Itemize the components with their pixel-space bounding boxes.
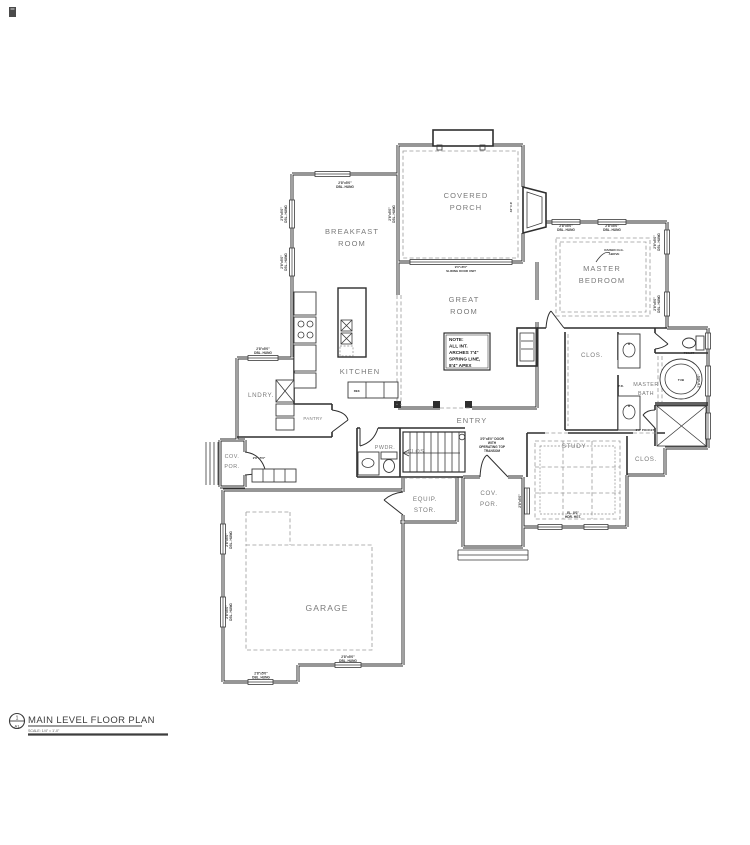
label-cov-por-front-1: COV.	[480, 490, 497, 497]
win-label: DBL. HUNG	[284, 205, 288, 223]
win-label: DBL. HUNG	[557, 228, 575, 232]
label-master-bed-2: BEDROOM	[579, 276, 625, 285]
win-label: DBL. HUNG	[392, 205, 396, 223]
pd-label: P.D.	[618, 384, 624, 388]
note-line-1: NOTE:	[449, 337, 464, 342]
pocket-door-label: 3'0" POCKET	[636, 428, 655, 432]
label-cov-por-left-2: POR.	[224, 464, 239, 470]
label-pantry: PANTRY	[303, 416, 322, 421]
corner-mark	[9, 7, 16, 17]
win-label: DBL. HUNG	[603, 228, 621, 232]
win-label: DBL. HUNG	[254, 351, 272, 355]
note-line-3: ARCHES 7'4"	[449, 350, 479, 355]
label-breakfast-1: BREAKFAST	[325, 227, 379, 236]
label-equip-1: EQUIP.	[413, 496, 437, 503]
label-study-closet: CLOS.	[635, 456, 657, 463]
label-breakfast-2: ROOM	[338, 239, 366, 248]
label-garage: GARAGE	[306, 603, 349, 613]
label-master-bath-2: BATH	[638, 391, 654, 397]
win-label: DBL. HUNG	[252, 675, 270, 679]
fireplace	[523, 187, 546, 233]
floor-plan-svg: NOTE: ALL INT. ARCHES 7'4" SPRING LINE, …	[0, 0, 750, 845]
label-cov-por-front-2: POR.	[480, 501, 498, 508]
fireplace-label: 42" F.P.	[509, 202, 513, 213]
label-stair-closet: CLOS.	[408, 449, 427, 455]
note-line-2: ALL INT.	[449, 344, 468, 349]
label-master-bath-1: MASTER	[633, 382, 658, 388]
label-pwdr: PWDR.	[375, 445, 395, 451]
label-great-1: GREAT	[449, 295, 480, 304]
label-tub: TUB	[678, 378, 685, 382]
label-great-2: ROOM	[450, 307, 478, 316]
label-kitchen: KITCHEN	[340, 367, 381, 376]
win-label: DBL. HUNG	[229, 531, 233, 549]
title-block: 1 A1 MAIN LEVEL FLOOR PLAN SCALE: 1/4" =…	[10, 714, 169, 735]
dashed-lines	[246, 151, 662, 650]
label-cov-por-left-1: COV.	[225, 454, 240, 460]
plan-scale: SCALE: 1/4" = 1'-0"	[28, 729, 60, 733]
label-covered-porch-1: COVERED	[444, 191, 489, 200]
plan-title: MAIN LEVEL FLOOR PLAN	[28, 715, 155, 726]
ref-label: REF.	[354, 389, 361, 393]
header-label-2: HDR. HGT.	[565, 515, 581, 519]
win-label: 2'8"x5'0"	[518, 494, 522, 508]
win-label: DBL. HUNG	[284, 253, 288, 271]
slider-label-2: SLIDING DOOR UNIT	[446, 269, 476, 273]
win-label: DBL. HUNG	[657, 295, 661, 313]
label-master-bed-1: MASTER	[583, 264, 621, 273]
note-box: NOTE: ALL INT. ARCHES 7'4" SPRING LINE, …	[444, 333, 490, 370]
label-equip-2: STOR.	[414, 507, 436, 514]
detail-symbol-number: 1	[16, 716, 19, 722]
label-toilet: TOILET	[684, 351, 695, 355]
detail-symbol-sheet: A1	[15, 724, 21, 729]
label-entry: ENTRY	[457, 416, 488, 425]
label-covered-porch-2: PORCH	[450, 203, 483, 212]
note-line-5: 8'4" APEX	[449, 363, 472, 368]
floor-plan-sheet: NOTE: ALL INT. ARCHES 7'4" SPRING LINE, …	[0, 0, 750, 845]
label-master-closet: CLOS.	[581, 352, 603, 359]
note-line-4: SPRING LINE,	[449, 357, 480, 362]
door-size-label: 2'8"x5'0"	[253, 456, 266, 460]
label-study: STUDY	[562, 443, 586, 450]
win-label: DBL. HUNG	[229, 603, 233, 621]
chimney	[433, 130, 493, 150]
label-lndry: LNDRY.	[248, 392, 274, 399]
raised-clg-label-2: ABOVE	[609, 252, 620, 256]
door-note-4: TRANSOM	[484, 449, 500, 453]
win-label: 2'8"x5'0"	[697, 374, 701, 388]
win-label: DBL. HUNG	[339, 659, 357, 663]
win-label: DBL. HUNG	[336, 185, 354, 189]
win-label: DBL. HUNG	[657, 233, 661, 251]
